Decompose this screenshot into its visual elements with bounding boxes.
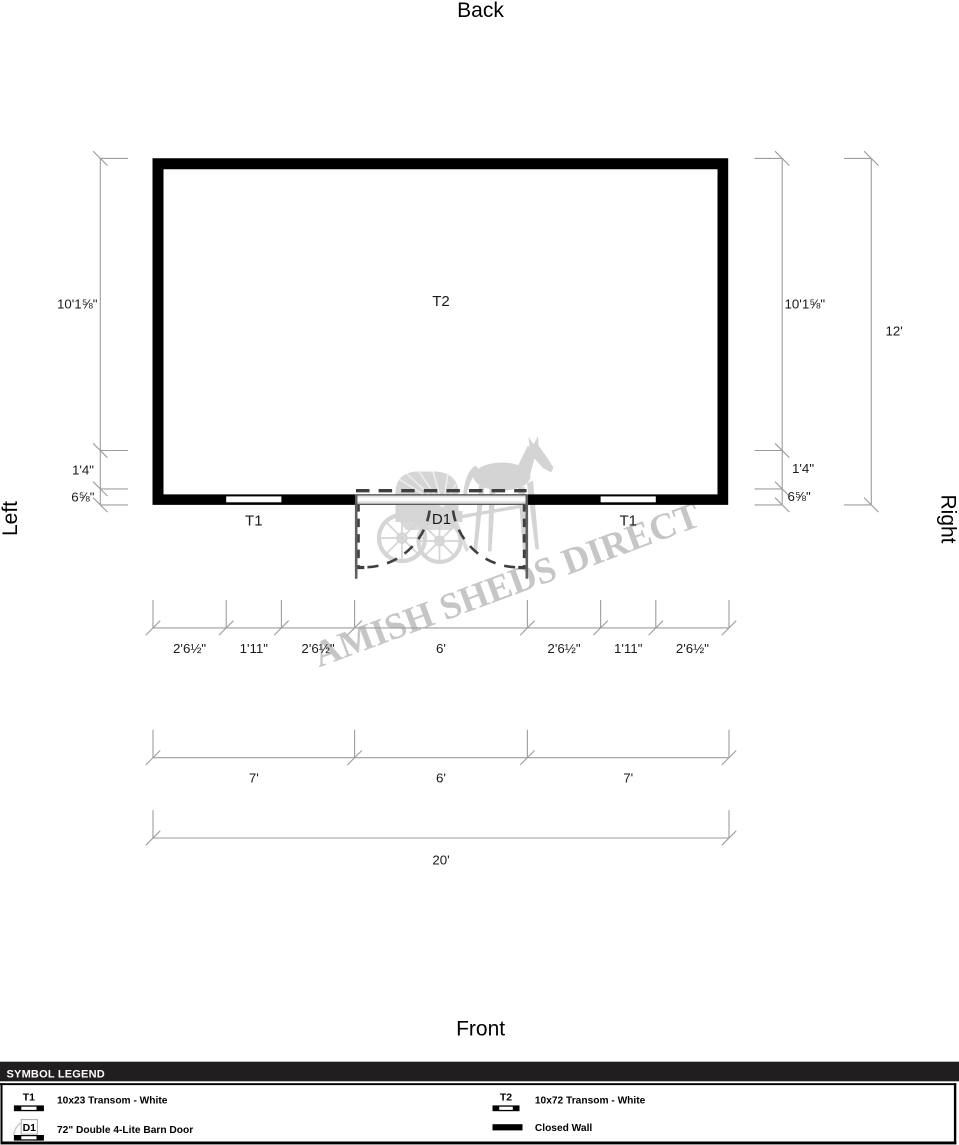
- svg-text:T2: T2: [500, 1092, 512, 1104]
- svg-text:2'6½": 2'6½": [173, 641, 206, 656]
- svg-text:2'6½": 2'6½": [547, 641, 580, 656]
- svg-text:Closed Wall: Closed Wall: [535, 1123, 593, 1134]
- svg-text:7': 7': [623, 771, 633, 786]
- svg-text:10x72 Transom - White: 10x72 Transom - White: [535, 1096, 646, 1107]
- svg-text:T2: T2: [432, 293, 450, 310]
- svg-text:1'11": 1'11": [240, 641, 269, 656]
- svg-text:10'1⅝": 10'1⅝": [785, 297, 826, 312]
- svg-text:T1: T1: [23, 1092, 35, 1104]
- svg-text:10x23 Transom - White: 10x23 Transom - White: [57, 1096, 168, 1107]
- svg-text:12': 12': [886, 323, 903, 338]
- svg-text:2'6½": 2'6½": [676, 641, 709, 656]
- svg-text:AMISH SHEDS DIRECT: AMISH SHEDS DIRECT: [308, 495, 706, 676]
- svg-text:1'11": 1'11": [614, 641, 643, 656]
- svg-text:D1: D1: [432, 511, 451, 528]
- svg-text:7': 7': [249, 771, 259, 786]
- svg-text:T1: T1: [245, 513, 263, 530]
- svg-text:1'4": 1'4": [792, 461, 814, 476]
- svg-text:20': 20': [432, 853, 449, 868]
- svg-text:6⅝": 6⅝": [71, 490, 94, 505]
- svg-text:6': 6': [436, 771, 446, 786]
- svg-text:D1: D1: [23, 1122, 37, 1134]
- svg-text:6': 6': [436, 641, 446, 656]
- svg-text:10'1⅝": 10'1⅝": [57, 297, 98, 312]
- svg-text:Left: Left: [0, 501, 22, 536]
- svg-text:Back: Back: [457, 0, 504, 22]
- svg-text:1'4": 1'4": [72, 463, 94, 478]
- svg-text:Front: Front: [456, 1018, 505, 1041]
- svg-text:Right: Right: [937, 494, 959, 543]
- svg-text:6⅝": 6⅝": [788, 489, 811, 504]
- svg-text:T1: T1: [619, 513, 637, 530]
- svg-text:SYMBOL LEGEND: SYMBOL LEGEND: [7, 1069, 105, 1081]
- svg-text:72" Double 4-Lite Barn Door: 72" Double 4-Lite Barn Door: [57, 1125, 193, 1136]
- svg-text:2'6½": 2'6½": [301, 641, 334, 656]
